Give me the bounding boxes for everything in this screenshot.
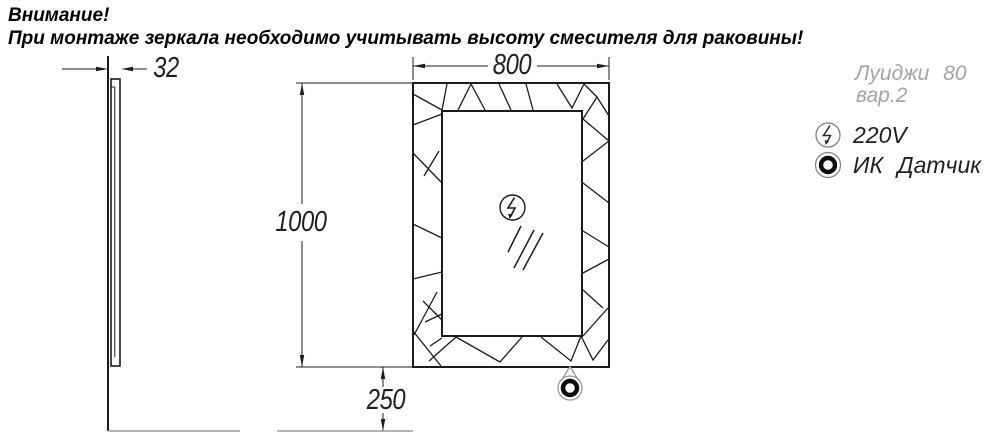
height-dimension-label: 1000 xyxy=(268,208,334,237)
model-name: Луиджи 80 xyxy=(855,63,967,85)
offset-dimension-label: 250 xyxy=(353,386,419,415)
legend-ir-sensor-icon xyxy=(816,153,841,178)
depth-dimension-label: 32 xyxy=(150,54,183,83)
ir-sensor-label: ИК Датчик xyxy=(853,153,981,177)
width-dimension-label: 800 xyxy=(479,51,545,80)
front-view xyxy=(413,83,609,400)
mirror-installation-drawing: Внимание! При монтаже зеркала необходимо… xyxy=(0,0,1000,435)
side-view xyxy=(108,56,240,431)
legend-power-icon xyxy=(816,123,840,147)
ir-sensor-pin-icon xyxy=(558,367,582,401)
power-label: 220V xyxy=(853,123,907,147)
mirror-glass xyxy=(442,111,582,336)
mirror-profile xyxy=(111,79,120,366)
depth-dimension xyxy=(62,67,147,71)
model-variant: вар.2 xyxy=(856,85,907,107)
